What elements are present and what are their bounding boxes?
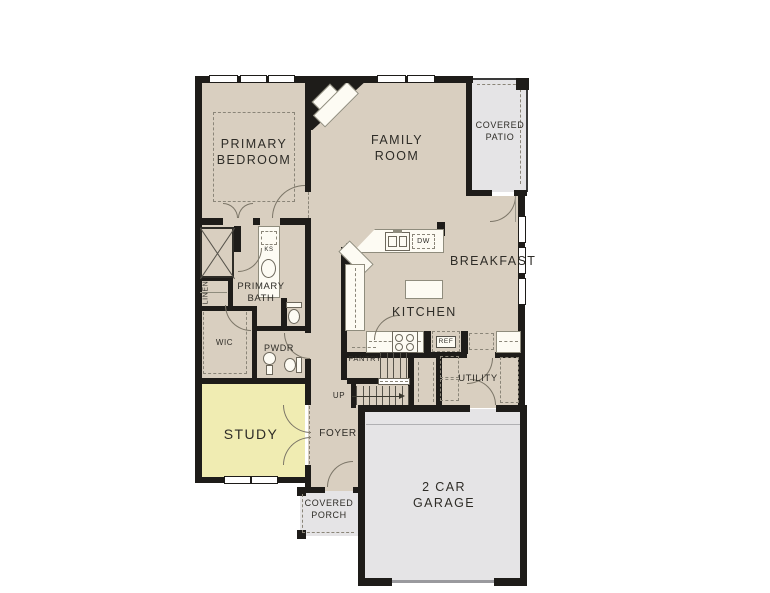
pantry-shelf-dash <box>352 347 376 348</box>
wall-segment <box>195 378 311 384</box>
wall-segment <box>358 405 365 585</box>
stair-tread <box>400 353 401 379</box>
stair-tread <box>387 353 388 379</box>
window <box>518 216 526 243</box>
sink-basin <box>388 236 397 247</box>
label-dishwasher: DW <box>412 237 435 246</box>
shower <box>200 227 234 278</box>
sink-faucet <box>393 229 402 233</box>
counter-dash <box>499 341 518 342</box>
window <box>209 75 238 83</box>
stairs-upper <box>380 352 408 378</box>
label-primary-bedroom: PRIMARY BEDROOM <box>210 136 298 169</box>
garage-door-line <box>392 580 494 583</box>
up-arrow-line <box>352 396 400 397</box>
wall-segment <box>253 218 260 225</box>
window <box>268 75 295 83</box>
label-study: STUDY <box>216 425 286 443</box>
door-leaf-dash <box>309 406 310 464</box>
wall-segment <box>358 405 470 412</box>
label-powder: PWDR <box>260 343 298 355</box>
floor-plan: DW REF <box>0 0 770 593</box>
patio-column <box>516 78 529 90</box>
wall-segment <box>305 218 311 333</box>
counter-pier <box>461 331 468 354</box>
vanity-sink <box>261 259 276 278</box>
label-primary-bath: PRIMARY BATH <box>232 281 290 306</box>
wall-segment <box>305 115 311 192</box>
door-leaf-patio <box>515 196 516 222</box>
wall-segment <box>353 487 362 493</box>
window <box>224 476 251 484</box>
label-knee-space: KS <box>258 247 280 255</box>
label-up: UP <box>330 391 348 401</box>
closet-dashes <box>418 362 434 402</box>
label-refrigerator: REF <box>436 338 456 346</box>
door-leaf-dash <box>308 192 309 218</box>
burner <box>406 334 414 342</box>
label-linen: LINEN <box>201 273 210 313</box>
up-arrow-head <box>399 393 405 399</box>
vanity-cabinet <box>261 231 277 245</box>
wall-segment <box>468 190 492 196</box>
pedestal-base <box>266 365 273 375</box>
kitchen-island <box>405 280 443 299</box>
wall-segment <box>252 306 257 383</box>
cabinet-dashes <box>469 333 494 350</box>
handrail-dashes <box>380 381 408 382</box>
burner <box>406 343 414 351</box>
sink-basin <box>399 236 407 247</box>
counter-dash <box>355 268 356 328</box>
wall-segment <box>358 578 392 586</box>
label-utility: UTILITY <box>446 373 510 385</box>
wall-segment <box>494 578 527 586</box>
window <box>240 75 267 83</box>
label-pantry: PANTRY <box>347 354 383 364</box>
counter-pier <box>424 331 431 354</box>
wall-segment <box>252 326 305 331</box>
label-covered-patio: COVERED PATIO <box>473 120 527 143</box>
label-family-room: FAMILY ROOM <box>361 132 433 165</box>
label-covered-porch: COVERED PORCH <box>301 498 357 521</box>
stair-tread <box>393 353 394 379</box>
stair-tread <box>408 386 409 405</box>
wall-segment <box>305 487 325 493</box>
wall-segment <box>466 76 472 196</box>
window <box>407 75 435 83</box>
kitchen-counter-east <box>496 331 521 353</box>
wall-segment <box>520 405 527 585</box>
burner <box>395 343 403 351</box>
window <box>377 75 406 83</box>
label-breakfast: BREAKFAST <box>450 253 526 269</box>
window <box>251 476 278 484</box>
window <box>518 278 526 305</box>
label-kitchen: KITCHEN <box>392 304 452 320</box>
stair-tread <box>406 353 407 379</box>
label-wic: WIC <box>211 338 238 348</box>
toilet-tank <box>296 357 302 373</box>
toilet-bowl <box>288 309 300 324</box>
garage-step-line <box>366 424 520 425</box>
label-foyer: FOYER <box>317 427 359 440</box>
wall-segment <box>195 218 223 225</box>
toilet-bowl <box>284 358 296 372</box>
label-garage: 2 CAR GARAGE <box>408 479 480 512</box>
